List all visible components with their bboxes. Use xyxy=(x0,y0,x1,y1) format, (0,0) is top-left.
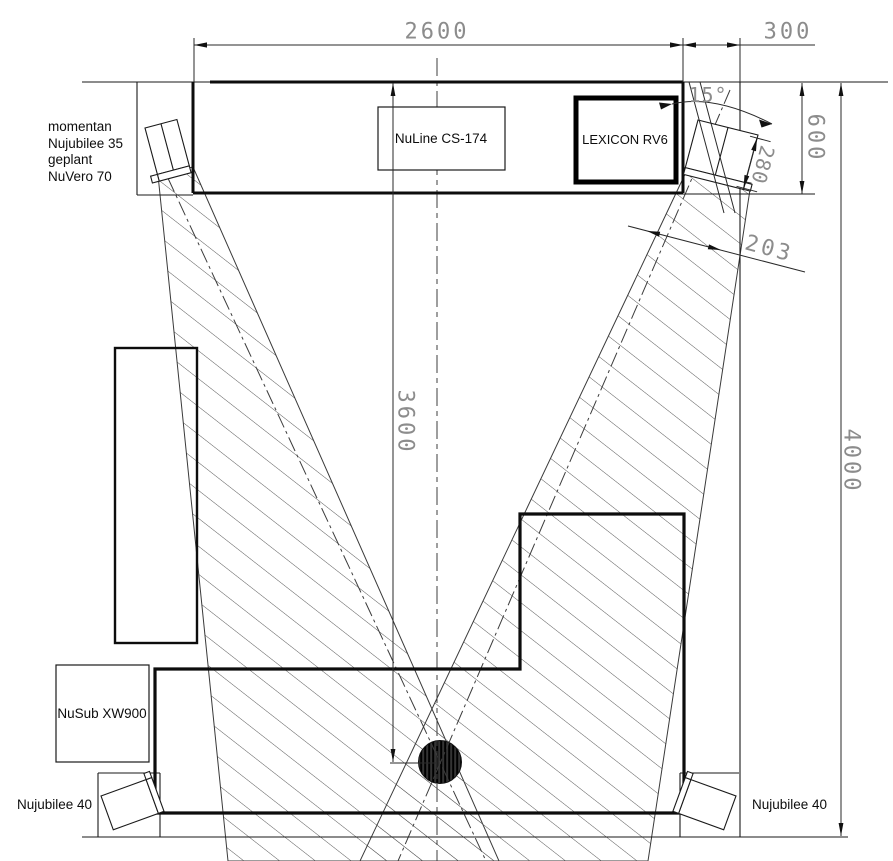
dim-room-length: 4000 xyxy=(839,429,864,494)
dim-front-wall-width: 2600 xyxy=(405,20,470,45)
label-line: Nujubilee 35 xyxy=(48,136,123,153)
label-line: geplant xyxy=(48,152,123,169)
center-speaker-label: NuLine CS-174 xyxy=(395,131,487,148)
front-left-speaker xyxy=(145,120,191,184)
rear-right-speaker xyxy=(673,771,736,829)
dim-listening-distance: 3600 xyxy=(393,390,418,455)
label-line: momentan xyxy=(48,119,123,136)
label-line: NuVero 70 xyxy=(48,169,123,186)
dim-corner-niche-width: 300 xyxy=(764,20,813,45)
rear-right-speaker-label: Nujubilee 40 xyxy=(752,797,827,814)
rear-left-speaker-label: Nujubilee 40 xyxy=(17,797,92,814)
dim-front-depth: 600 xyxy=(803,114,828,163)
dim-toe-in-angle: 15° xyxy=(688,83,727,107)
front-left-speaker-label: momentan Nujubilee 35 geplant NuVero 70 xyxy=(48,119,123,185)
floor-plan-sheet: momentan Nujubilee 35 geplant NuVero 70 … xyxy=(0,0,893,861)
plan-linework xyxy=(0,0,893,861)
subwoofer-label: NuSub XW900 xyxy=(57,706,146,723)
av-receiver-label: LEXICON RV6 xyxy=(582,132,668,149)
